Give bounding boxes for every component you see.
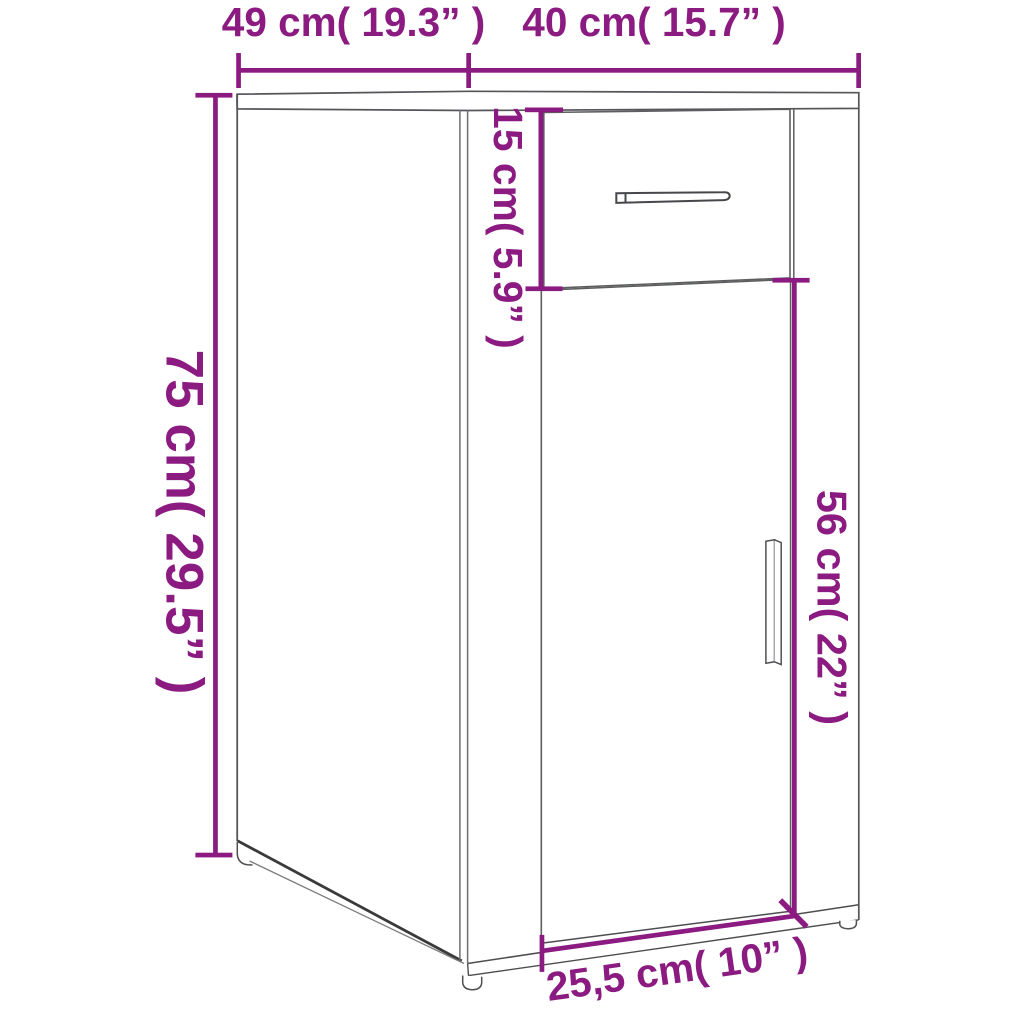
svg-text:75 cm( 29.5” ): 75 cm( 29.5” ) xyxy=(155,350,214,695)
svg-text:15 cm( 5.9” ): 15 cm( 5.9” ) xyxy=(485,106,531,349)
svg-text:40 cm( 15.7” ): 40 cm( 15.7” ) xyxy=(522,0,785,45)
svg-text:49 cm( 19.3” ): 49 cm( 19.3” ) xyxy=(222,0,485,45)
svg-text:56 cm( 22” ): 56 cm( 22” ) xyxy=(809,490,856,725)
